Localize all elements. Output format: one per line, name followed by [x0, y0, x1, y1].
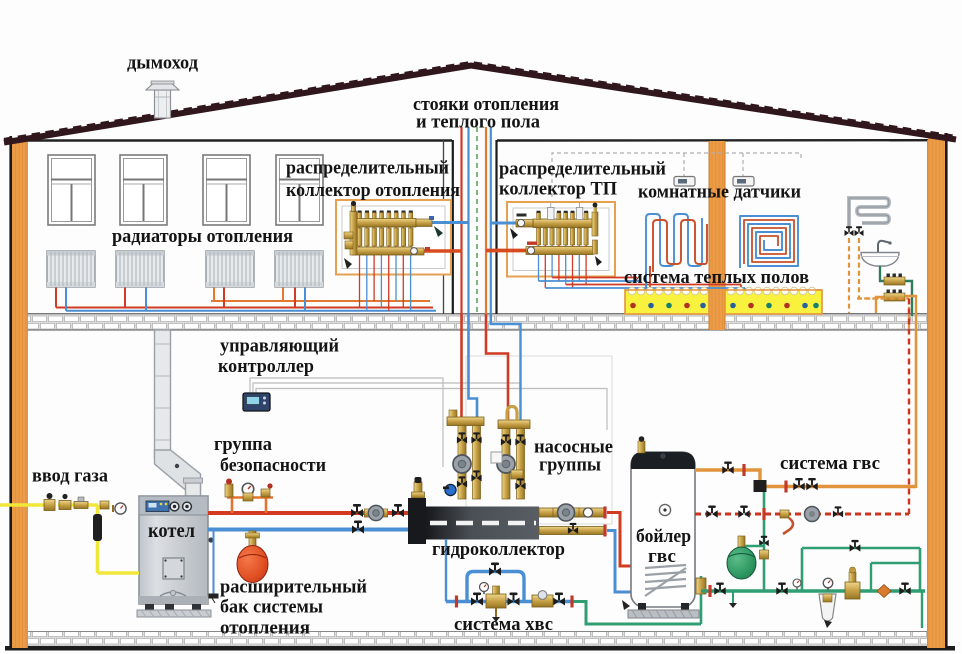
svg-text:группа: группа — [214, 434, 272, 455]
svg-text:коллектор ТП: коллектор ТП — [499, 179, 617, 200]
svg-text:система хвс: система хвс — [454, 614, 553, 635]
svg-text:система гвс: система гвс — [780, 453, 880, 474]
svg-text:безопасности: безопасности — [220, 455, 326, 476]
svg-text:расширительный: расширительный — [220, 577, 367, 598]
svg-text:распределительный: распределительный — [499, 159, 666, 180]
svg-text:контроллер: контроллер — [218, 356, 314, 377]
svg-text:дымоход: дымоход — [127, 53, 198, 74]
svg-text:система теплых полов: система теплых полов — [624, 267, 809, 288]
svg-text:коллектор отопления: коллектор отопления — [286, 180, 460, 201]
svg-text:комнатные датчики: комнатные датчики — [638, 182, 801, 203]
svg-text:управляющий: управляющий — [220, 336, 339, 357]
svg-text:радиаторы отопления: радиаторы отопления — [112, 226, 293, 247]
svg-text:ввод газа: ввод газа — [32, 466, 108, 487]
svg-text:и теплого пола: и теплого пола — [416, 112, 540, 133]
svg-text:бак системы: бак системы — [220, 597, 323, 618]
svg-text:котел: котел — [148, 520, 195, 542]
svg-text:гидроколлектор: гидроколлектор — [432, 539, 565, 560]
svg-text:гвс: гвс — [648, 546, 676, 567]
svg-text:бойлер: бойлер — [636, 526, 691, 547]
svg-text:группы: группы — [539, 455, 601, 476]
svg-text:распределительный: распределительный — [286, 158, 449, 179]
svg-text:отопления: отопления — [220, 618, 310, 639]
